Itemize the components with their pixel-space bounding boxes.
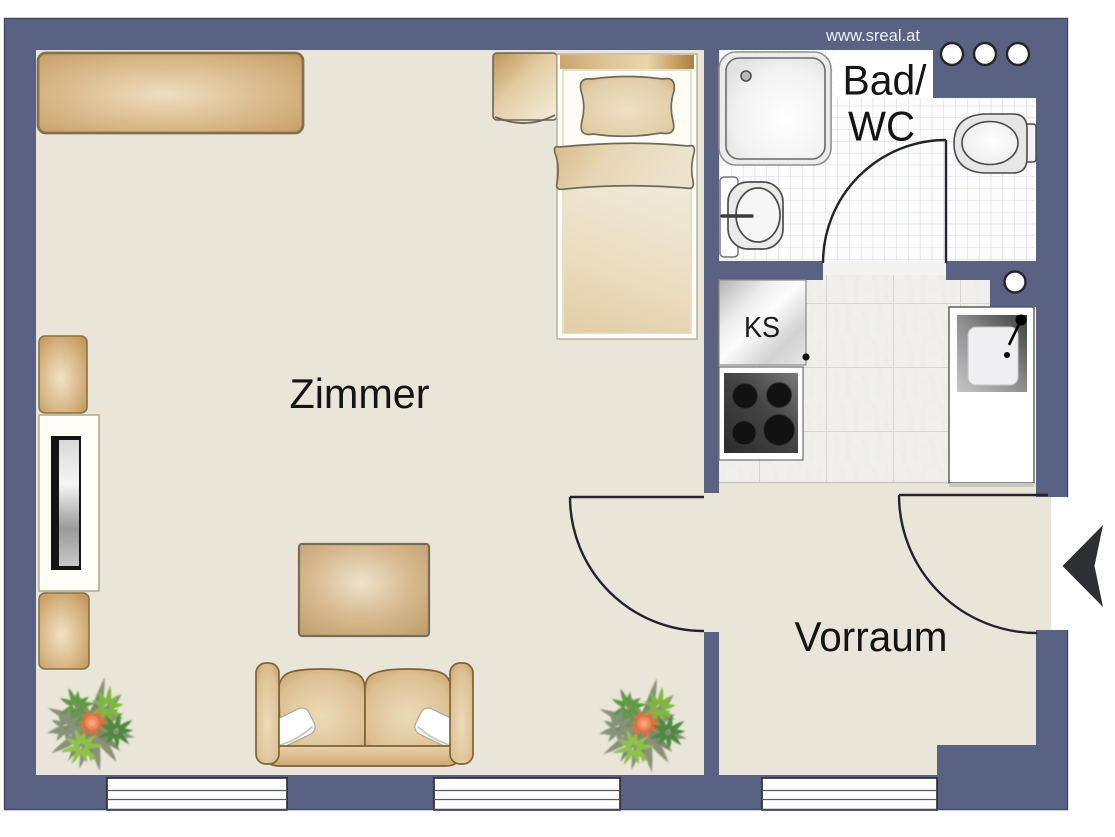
svg-text:KS: KS — [744, 312, 780, 344]
svg-text:Vorraum: Vorraum — [795, 613, 948, 660]
svg-text:WC: WC — [848, 103, 915, 150]
svg-text:Bad/: Bad/ — [843, 57, 927, 104]
svg-text:www.sreal.at: www.sreal.at — [825, 26, 920, 45]
svg-text:Zimmer: Zimmer — [290, 370, 430, 417]
